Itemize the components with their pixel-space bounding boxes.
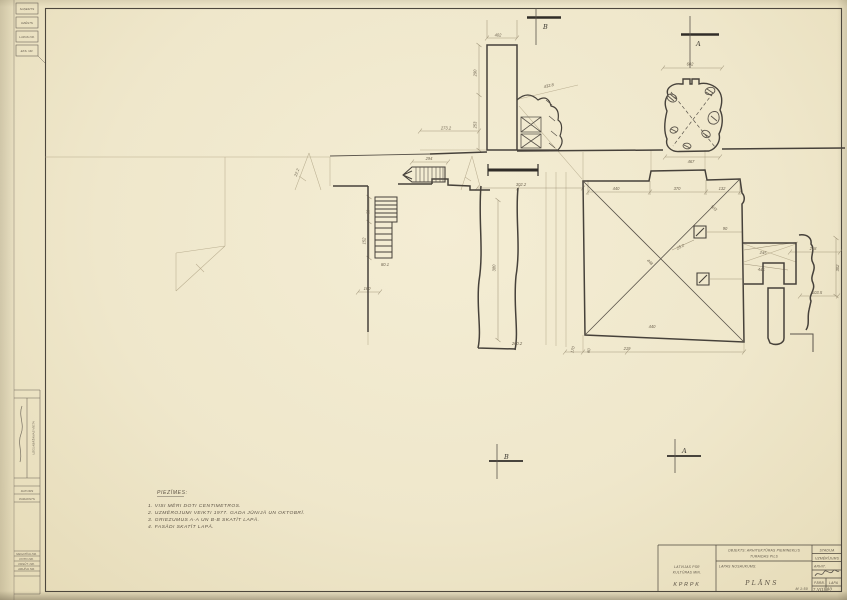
side-archive-table: UZGLABĀŠANAS VIETA DATUMS PARAKSTS NEGAT… [14, 390, 40, 594]
note-line: 2. UZMĒROJUMI VEIKTI 1977. GADA JŪNIJĀ U… [147, 509, 305, 516]
rubble-masonry [517, 95, 562, 150]
right-small-wall [790, 334, 813, 352]
room-diagonals [583, 179, 744, 342]
dim-label: 80.1 [381, 262, 389, 267]
section-letter-a-top: A [695, 40, 701, 48]
stage-value: UZMĒRĪJUMS [815, 557, 840, 561]
side-table-row-label: NEGATĪVA NR. [16, 552, 37, 556]
title-block: LATVIJAS PSR KULTŪRAS MIN. KPRPK OBJEKTS… [658, 545, 842, 592]
dim-label: 245 [758, 249, 767, 255]
wall-niches [521, 117, 541, 148]
side-table-row-label: FOTO NR. [19, 557, 33, 561]
dim-label: 302 [835, 264, 840, 272]
note-line: 3. GRIEZUMUS A-A UN B-B SKATĪT LAPĀ. [148, 516, 259, 523]
author-label: ARHIT. [813, 565, 826, 569]
stamp-label: DZĒSTS [21, 21, 33, 25]
object-name: TURAIDAS PILS [750, 555, 779, 559]
dim-label: 103.5 [812, 290, 823, 295]
wall-edge-notched [398, 179, 490, 190]
dim-label: 90 [723, 226, 728, 231]
dim-label: 302.2 [516, 182, 527, 187]
right-pier [768, 288, 784, 344]
side-table-row-label: PARAKSTS [19, 497, 35, 501]
section-letter-a-bottom: A [681, 447, 687, 455]
scale-value: M 1:50 [796, 587, 809, 591]
wall-pier-plan [487, 45, 517, 150]
dim-label: 260.2 [511, 341, 523, 346]
dim-label: 467 [688, 159, 696, 164]
dim-label: 294 [425, 156, 434, 161]
side-table-rotated-label: UZGLABĀŠANAS VIETA [31, 421, 36, 454]
dimension-lines [356, 20, 842, 355]
dim-label: 160 [364, 286, 372, 291]
note-line: 4. FASĀDI SKATĪT LAPĀ. [148, 523, 214, 530]
dim-label: 219 [623, 346, 632, 351]
dim-label: 60 [366, 209, 371, 214]
handwritten-signature [20, 406, 23, 462]
tower-ruin [665, 79, 723, 152]
side-table-row-label: PASŪT. NR. [18, 562, 35, 566]
stamp-boxes: SAŅEMTS DZĒSTS LAPAS NR. EKS. NR. [16, 3, 45, 63]
drawing-sheet: SAŅEMTS DZĒSTS LAPAS NR. EKS. NR. UZGLAB… [0, 0, 847, 600]
stair-flight-lower [375, 222, 392, 258]
dim-label: 218 [809, 246, 818, 251]
dim-label: 273.2 [440, 126, 452, 131]
sheet-number-label: LAPA [829, 581, 839, 585]
note-line: 1. VISI MĒRI DOTI CENTIMETROS. [148, 502, 241, 509]
dim-label: 602 [687, 62, 695, 67]
stair-flight-upper [375, 197, 397, 222]
dim-label: 432.8 [543, 82, 555, 89]
org-name: KULTŪRAS MIN. [673, 571, 701, 575]
object-label: OBJEKTS: ARHITEKTŪRAS PIEMINEKLIS [728, 549, 801, 553]
dim-label: 253 [473, 121, 478, 130]
dim-label: 503 [710, 204, 719, 213]
stamp-label: SAŅEMTS [20, 7, 35, 11]
notes-block: PIEZĪMES: 1. VISI MĒRI DOTI CENTIMETROS.… [147, 489, 305, 530]
dim-label: 440 [613, 186, 621, 191]
dim-label: 440 [649, 324, 657, 329]
dim-label: 152 [362, 237, 367, 245]
joist-holes [694, 226, 709, 285]
signature-scribble [815, 570, 839, 576]
org-abbreviation: KPRPK [673, 582, 700, 588]
notes-heading: PIEZĪMES: [157, 489, 188, 496]
stair-symbols [375, 167, 445, 258]
dim-label: 370 [674, 186, 682, 191]
stamp-label: LAPAS NR. [19, 35, 35, 39]
dim-label: 60 [586, 347, 592, 353]
stage-label: STADIJA [819, 549, 835, 553]
section-letter-b-top: B [542, 23, 548, 31]
sheet-name-label: LAPAS NOSAUKUMS: [719, 565, 756, 569]
side-table-row-label: ARHĪVA NR. [17, 567, 35, 571]
dim-label: 170 [569, 345, 576, 354]
stamp-label: EKS. NR. [21, 49, 34, 53]
check-label: PĀRB. [814, 581, 825, 585]
dim-label: 290 [473, 69, 478, 78]
org-name: LATVIJAS PSR [674, 565, 700, 569]
wall-line-left [330, 154, 430, 156]
dim-label: 448 [646, 258, 655, 267]
main-wall-line [430, 148, 845, 154]
dim-label: 380 [492, 264, 497, 272]
side-table-row-label: DATUMS [21, 489, 33, 493]
tower-outline [665, 79, 723, 152]
sheet-title: PLĀNS [744, 580, 778, 587]
plan-drawing-canvas: SAŅEMTS DZĒSTS LAPAS NR. EKS. NR. UZGLAB… [0, 0, 847, 600]
wall-corner-left [333, 186, 368, 332]
dim-label: 132 [719, 186, 727, 191]
masonry-walls [333, 45, 845, 352]
stamp-connector-line [38, 56, 45, 63]
dim-label: 402 [495, 33, 503, 38]
section-letter-b-bottom: B [503, 453, 509, 461]
tower-stones [666, 86, 719, 149]
dim-label: 445 [757, 267, 765, 273]
handwritten-date: 7.VIII-80 [813, 586, 833, 592]
pencil-construction-lines [45, 85, 796, 352]
